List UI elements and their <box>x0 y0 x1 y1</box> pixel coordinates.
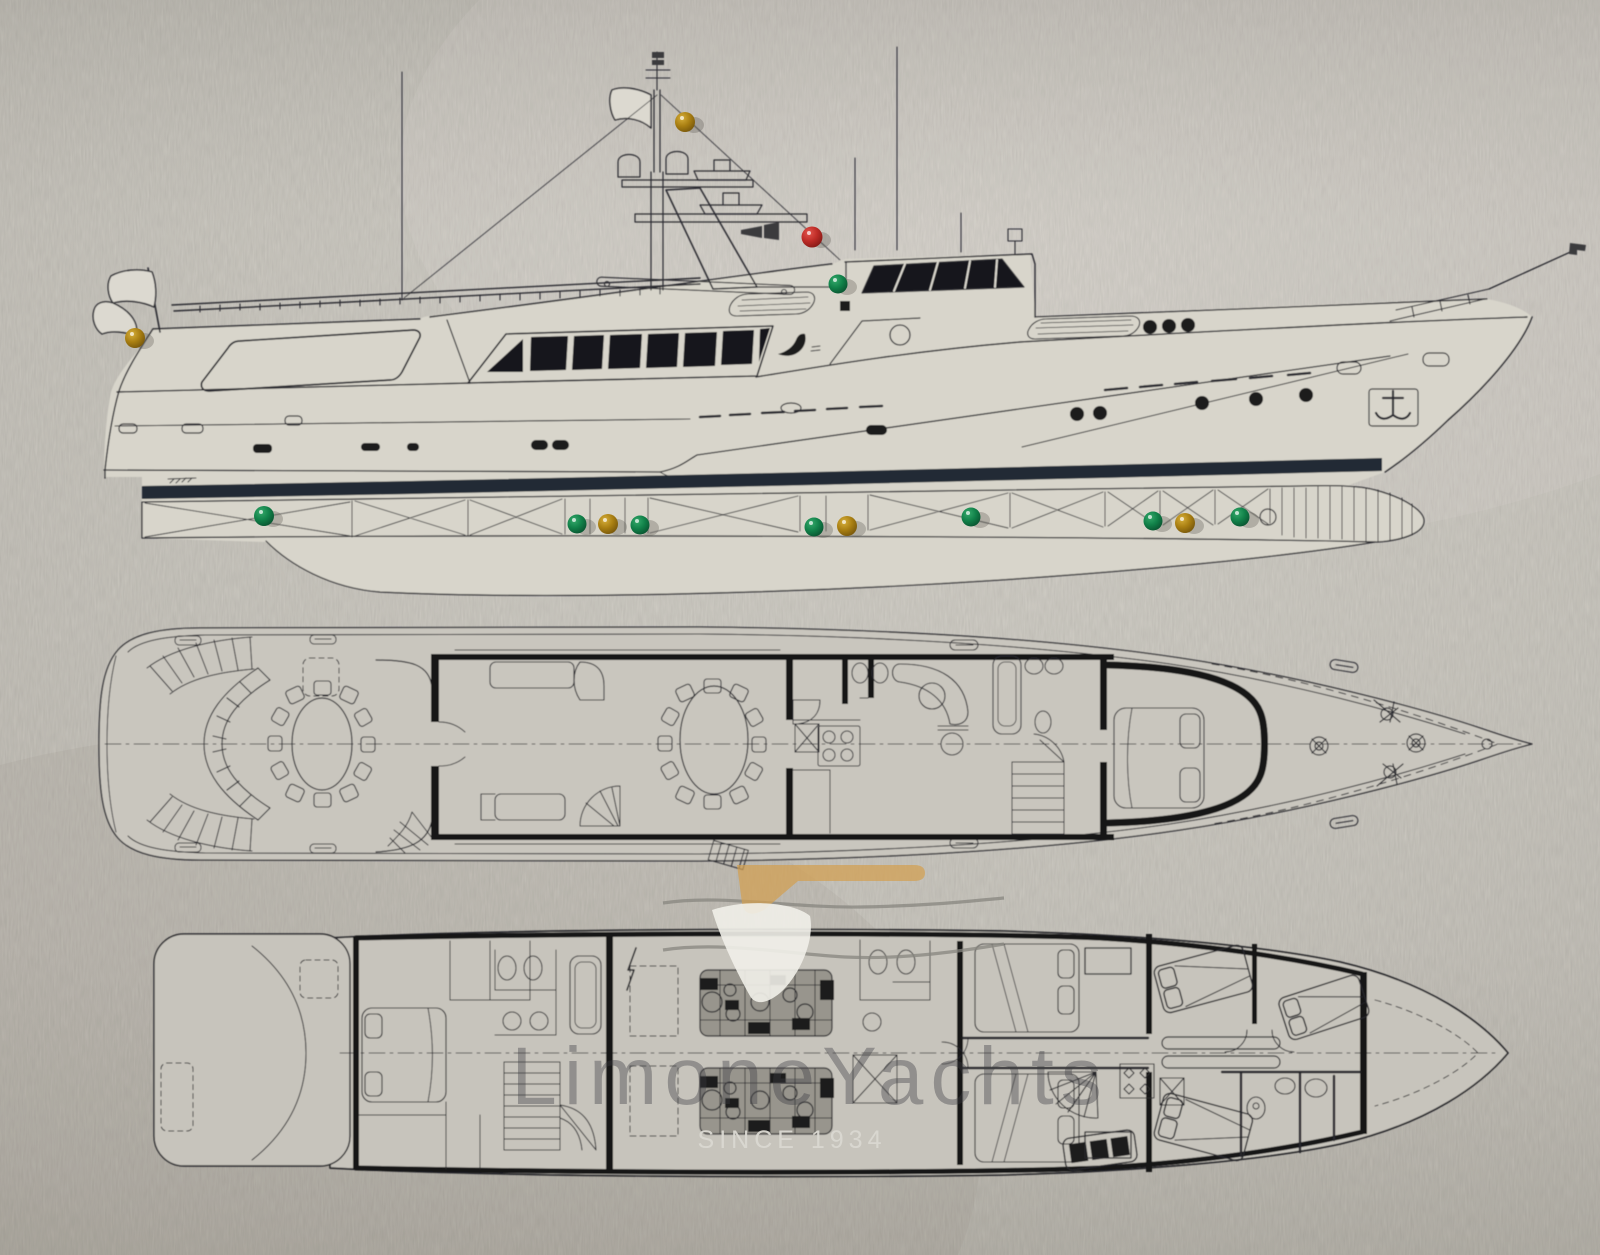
svg-text:SINCE 1934: SINCE 1934 <box>698 1126 887 1154</box>
svg-text:LimoneYachts: LimoneYachts <box>511 1031 1109 1122</box>
